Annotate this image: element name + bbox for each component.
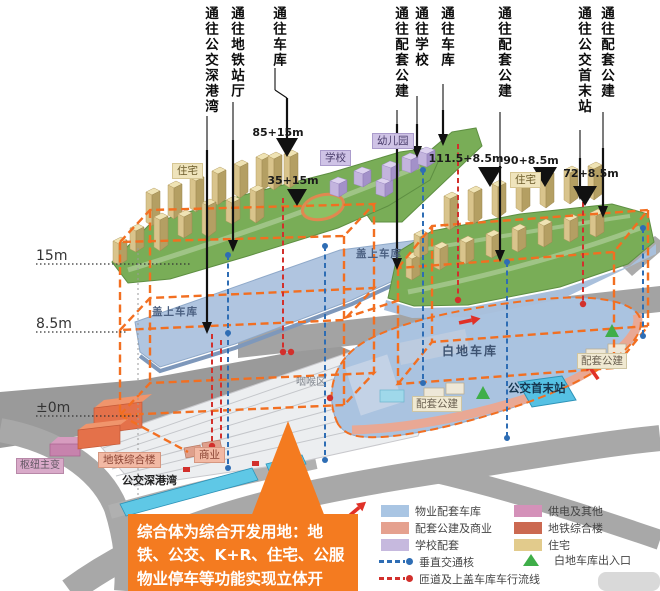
support-public-right-label: 配套公建 — [577, 353, 627, 369]
support-public-bottom-label: 配套公建 — [412, 396, 462, 412]
legend-item-metro-complex: 地铁综合楼 — [514, 521, 603, 534]
legend-item-residential: 住宅 — [514, 538, 570, 551]
deck-garage-left-label: 盖上车库 — [152, 306, 198, 318]
route-label-garage-2: 通往车库 — [434, 6, 452, 68]
legend-swatch-metro-complex — [514, 522, 542, 534]
development-callout: 综合体为综合开发用地：地铁、公交、K+R、住宅、公服物业停车等功能实现立体开发。 — [128, 514, 358, 591]
residential-right-label: 住宅 — [510, 172, 541, 188]
bus-bay-label: 公交深港湾 — [122, 475, 177, 488]
legend-swatch-power — [514, 505, 542, 517]
commerce-label: 商业 — [194, 447, 225, 463]
route-label-public-1: 通往配套公建 — [388, 6, 406, 99]
kindergarten-label: 幼儿园 — [372, 133, 414, 149]
height-90-8: 90+8.5m — [503, 154, 558, 167]
route-label-bus-terminus: 通往公交首末站 — [571, 6, 589, 115]
height-35-15: 35+15m — [267, 174, 318, 187]
height-85-15: 85+15m — [252, 126, 303, 139]
level-15m: 15m — [36, 248, 67, 264]
white-land-garage-label: 白地车库 — [442, 345, 498, 359]
route-label-public-2: 通往配套公建 — [491, 6, 509, 99]
legend-swatch-school — [381, 539, 409, 551]
route-label-bus-bay: 通往公交深港湾 — [198, 6, 216, 115]
height-72-8: 72+8.5m — [563, 167, 618, 180]
legend-dash-blue-icon — [379, 557, 413, 566]
legend-item-power: 供电及其他 — [514, 504, 603, 517]
legend-green-triangle-icon — [523, 554, 539, 566]
deck-garage-right-label: 盖上车库 — [356, 248, 402, 260]
residential-left-label: 住宅 — [172, 163, 203, 179]
height-111-8: 111.5+8.5m — [429, 152, 504, 165]
route-label-public-3: 通往配套公建 — [594, 6, 612, 99]
tod-development-diagram: 通往公交深港湾 通往地铁站厅 通往车库 通往配套公建 通往学校 通往车库 通往配… — [0, 0, 660, 591]
legend-item-vertical-core: 垂直交通核 — [379, 555, 474, 568]
legend-dash-red-icon — [379, 574, 413, 583]
legend-item-garage-entrance: 白地车库出入口 — [514, 553, 631, 566]
bus-terminus-label: 公交首末站 — [508, 382, 566, 395]
legend-item-school: 学校配套 — [381, 538, 459, 551]
legend-item-public-commerce: 配套公建及商业 — [381, 521, 492, 534]
legend-item-property-garage: 物业配套车库 — [381, 504, 481, 517]
level-0m: ±0m — [36, 400, 70, 416]
hub-transformer-label: 枢纽主变 — [16, 458, 64, 474]
school-label: 学校 — [320, 150, 351, 166]
legend-swatch-property-garage — [381, 505, 409, 517]
route-label-metro-hall: 通往地铁站厅 — [224, 6, 242, 99]
throat-area-label: 咽喉区 — [296, 377, 326, 389]
legend-swatch-public-commerce — [381, 522, 409, 534]
legend-swatch-residential — [514, 539, 542, 551]
route-label-school: 通往学校 — [408, 6, 426, 68]
metro-complex-label: 地铁综合楼 — [98, 452, 161, 468]
level-8-5m: 8.5m — [36, 316, 72, 332]
legend-item-ramp-flow: 匝道及上盖车库车行流线 — [379, 572, 540, 585]
route-label-garage-1: 通往车库 — [266, 6, 284, 68]
